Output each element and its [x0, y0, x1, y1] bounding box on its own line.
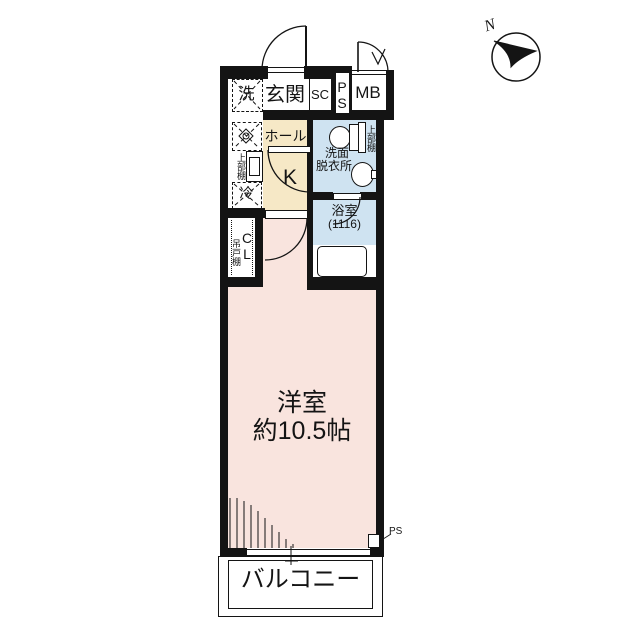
entrance-label: 玄関: [262, 84, 308, 106]
room-door-arc: [265, 218, 307, 260]
floor-plan: 洗 玄関 SC PS MB ホール K 上部棚 冷 CL 吊戸棚 洗面 脱衣所 …: [0, 0, 640, 639]
kitchen-upper-shelf-label: 上部棚: [234, 151, 245, 182]
kitchen-label: K: [279, 166, 301, 189]
hall-label: ホール: [264, 129, 307, 144]
washer-label: 洗: [232, 86, 261, 104]
compass-icon: [492, 33, 540, 81]
hatch-lines: [230, 498, 293, 548]
bathroom-size-label: (1116): [313, 218, 376, 231]
washroom-upper-shelf-label: 上部棚: [364, 124, 375, 153]
entrance-door-arc: [262, 26, 306, 70]
closet-hanging-shelf-label: 吊戸棚: [229, 227, 240, 277]
fridge-label: 冷: [232, 186, 261, 201]
shoe-closet-label: SC: [309, 88, 331, 102]
window-centre-tick: [285, 546, 298, 565]
pipe-space-label: PS: [336, 76, 349, 114]
stove-x-mark: [234, 124, 259, 148]
closet-label: CL: [240, 226, 254, 266]
western-room-size-label: 約10.5帖: [240, 418, 364, 446]
meter-box-label: MB: [350, 84, 386, 103]
balcony-label: バルコニー: [240, 567, 361, 593]
washroom-label-line2: 脱衣所: [310, 160, 358, 173]
western-room-label: 洋室: [252, 390, 352, 418]
mb-door-arc: [358, 42, 388, 72]
ps-bottom-label: PS: [389, 526, 409, 537]
